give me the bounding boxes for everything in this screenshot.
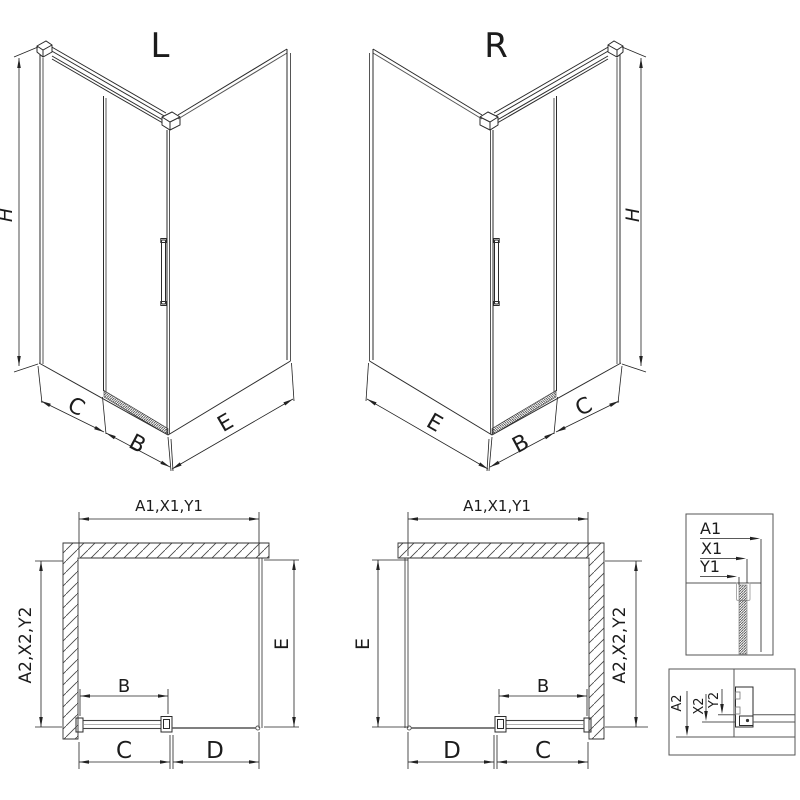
plan-right-wall-dim-label: A2,X2,Y2: [610, 607, 630, 684]
plan-right-d-label: D: [443, 738, 461, 764]
plan-left-walls: [63, 543, 269, 739]
door-bracket: [161, 717, 172, 733]
iso-left-title: L: [151, 26, 170, 66]
detail-top-x1-label: X1: [701, 539, 722, 558]
iso-view-linework: [14, 41, 294, 471]
detail-bottom-profile: [669, 669, 795, 755]
plan-right-top-dim-label: A1,X1,Y1: [463, 497, 531, 515]
plan-left-e-label: E: [271, 638, 293, 650]
plan-right-c-label: C: [535, 738, 551, 764]
plan-left-d-label: D: [206, 738, 224, 764]
iso-left-c-label: C: [63, 393, 88, 422]
plan-right-e-label: E: [352, 638, 374, 650]
plan-left-b-label: B: [118, 676, 130, 697]
iso-left-h-label: H: [0, 208, 17, 222]
detail-bottom-x2-label: X2: [692, 697, 707, 714]
iso-right-title: R: [484, 26, 508, 66]
plan-right-b-label: B: [537, 676, 549, 697]
screw-dot: [746, 719, 749, 722]
detail-bottom-a2-label: A2: [670, 694, 685, 711]
door-handle: [162, 240, 166, 304]
plan-right-walls: [398, 543, 604, 739]
plan-left-top-dim-label: A1,X1,Y1: [135, 497, 203, 515]
iso-right-c-label: C: [572, 393, 597, 422]
plan-left-wall-dim-label: A2,X2,Y2: [16, 607, 36, 684]
plan-right-side-dims: [372, 560, 648, 727]
plan-left-c-label: C: [116, 738, 132, 764]
shower-enclosure-diagram: L H C B E R H C B E A1,X1,Y1 A2,X2,Y2 E …: [0, 0, 800, 800]
detail-top-y1-label: Y1: [699, 557, 720, 576]
bottom-track: [104, 391, 168, 436]
detail-top-a1-label: A1: [700, 519, 721, 538]
iso-right-h-label: H: [622, 208, 644, 222]
iso-view-right-linework: [366, 41, 646, 471]
glass-section: [739, 585, 747, 654]
technical-drawing-canvas: L H C B E R H C B E A1,X1,Y1 A2,X2,Y2 E …: [0, 0, 800, 800]
iso-right-b-label: B: [508, 430, 533, 459]
detail-bottom-y2-label: Y2: [707, 692, 722, 709]
